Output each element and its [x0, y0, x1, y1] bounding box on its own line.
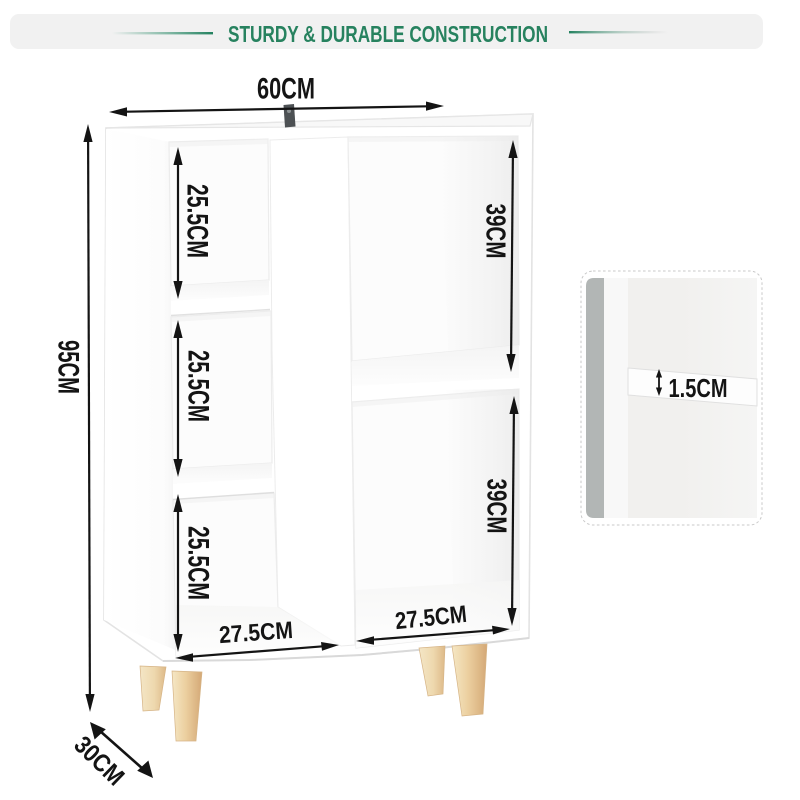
svg-text:27.5CM: 27.5CM — [218, 617, 294, 649]
svg-text:95CM: 95CM — [52, 340, 85, 394]
svg-text:25.5CM: 25.5CM — [182, 526, 215, 600]
svg-text:25.5CM: 25.5CM — [181, 184, 214, 258]
svg-text:STURDY & DURABLE CONSTRUCTION: STURDY & DURABLE CONSTRUCTION — [228, 21, 548, 47]
svg-text:30CM: 30CM — [68, 731, 129, 791]
svg-text:60CM: 60CM — [257, 73, 315, 106]
svg-text:25.5CM: 25.5CM — [182, 350, 215, 422]
svg-text:39CM: 39CM — [481, 204, 512, 259]
svg-text:39CM: 39CM — [482, 479, 513, 534]
svg-text:1.5CM: 1.5CM — [669, 373, 728, 403]
